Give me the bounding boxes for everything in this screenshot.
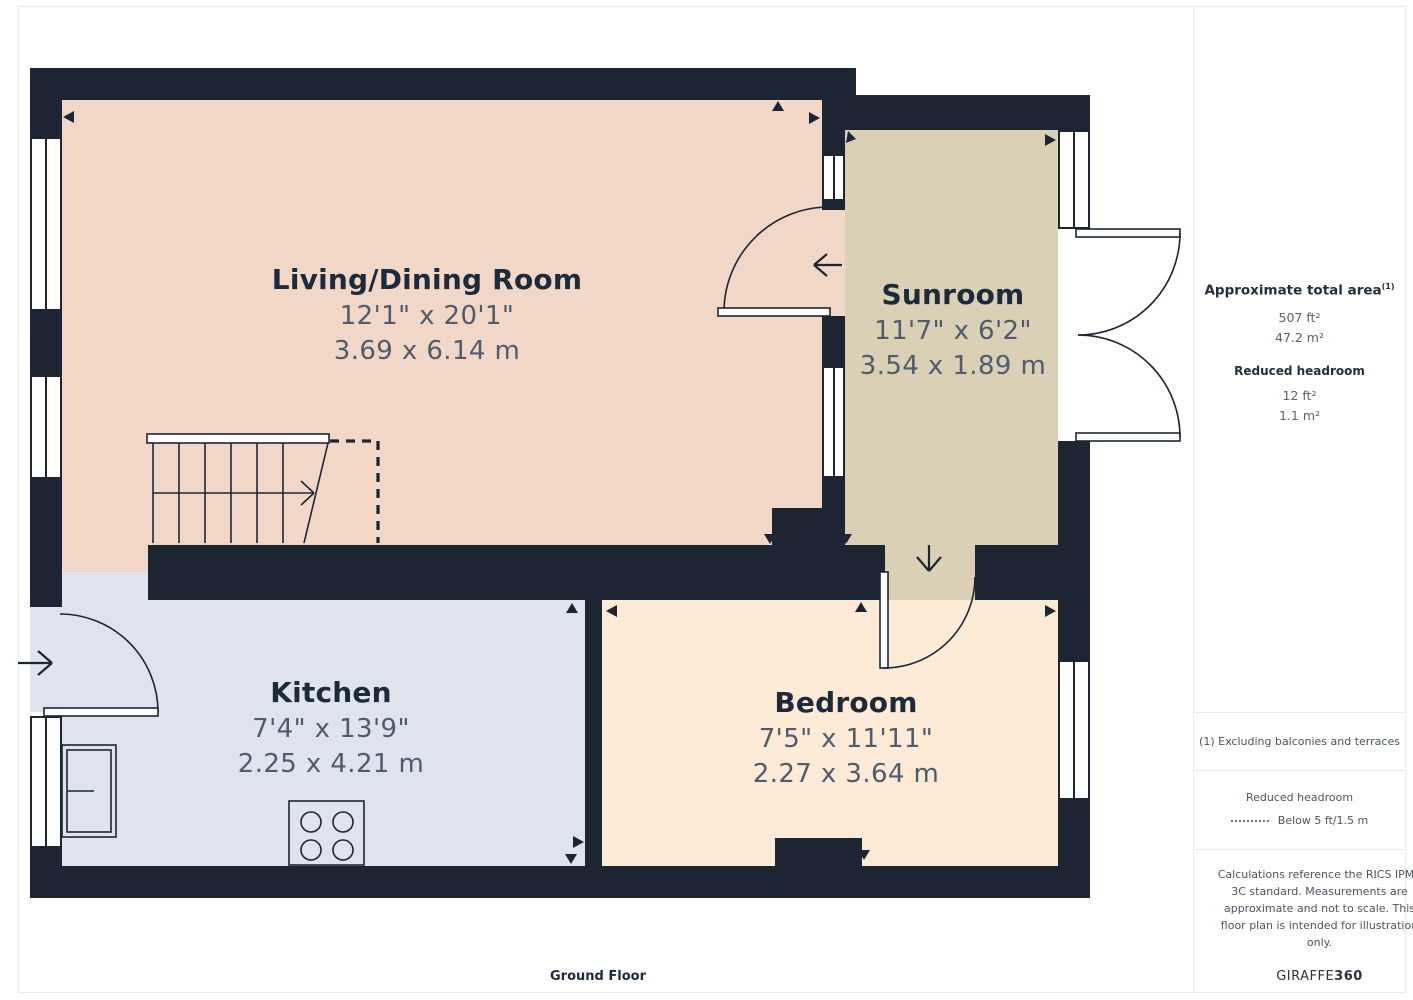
room-dim-ft: 7'4" x 13'9" (238, 714, 425, 744)
giraffe360-logo: GIRAFFE360 (1213, 967, 1413, 987)
french-doors (1076, 229, 1180, 441)
room-name: Bedroom (753, 686, 940, 719)
wall-divider-b (822, 201, 845, 210)
room-dim-m: 3.54 x 1.89 m (860, 351, 1047, 381)
room-name: Kitchen (238, 676, 425, 709)
room-dim-ft: 7'5" x 11'11" (753, 724, 940, 754)
reduced-headroom-ft: 12 ft² (1193, 386, 1406, 406)
legend-title: Reduced headroom (1193, 791, 1406, 804)
legend-row: Below 5 ft/1.5 m (1193, 814, 1406, 827)
sidebar-left-border (1193, 6, 1194, 993)
floor-living-door-opening (822, 210, 845, 316)
floor-kitchen-entry (30, 607, 62, 712)
total-area-ft: 507 ft² (1193, 308, 1406, 328)
room-label-bedroom: Bedroom 7'5" x 11'11" 2.27 x 3.64 m (753, 686, 940, 789)
window-divider-2 (822, 366, 845, 478)
wall-divider-c (822, 316, 845, 366)
total-area-m: 47.2 m² (1193, 328, 1406, 348)
room-dim-ft: 12'1" x 20'1" (272, 301, 582, 331)
wall-left-a (30, 68, 62, 137)
sidebar-divider-2 (1193, 770, 1406, 771)
reduced-headroom-label: Reduced headroom (1193, 364, 1406, 378)
window-living-left-1 (30, 137, 62, 311)
dotted-line-icon (1231, 820, 1269, 822)
floor-passage (885, 545, 975, 600)
room-dim-m: 2.25 x 4.21 m (238, 749, 425, 779)
wall-middle-right (975, 545, 1090, 600)
wall-middle (148, 545, 885, 600)
wall-chimney (775, 838, 862, 866)
room-label-sunroom: Sunroom 11'7" x 6'2" 3.54 x 1.89 m (860, 278, 1047, 381)
floor-living-ext (62, 545, 148, 572)
window-kitchen-left (30, 716, 62, 848)
total-area-label: Approximate total area(1) (1193, 282, 1406, 299)
wall-partition-kitchen-bedroom (585, 600, 602, 866)
sidebar-divider-1 (1193, 712, 1406, 713)
total-area-footnote-mark: (1) (1382, 282, 1395, 291)
wall-divider-a (822, 95, 845, 154)
wall-divider-d (822, 478, 845, 545)
window-bedroom-right (1058, 660, 1090, 800)
disclaimer-text: Calculations reference the RICS IPMS 3C … (1213, 866, 1413, 951)
room-dim-m: 2.27 x 3.64 m (753, 759, 940, 789)
room-label-living: Living/Dining Room 12'1" x 20'1" 3.69 x … (272, 263, 582, 366)
sidebar: Approximate total area(1) 507 ft² 47.2 m… (1193, 0, 1406, 1000)
brand-name: GIRAFFE (1276, 969, 1334, 984)
floorplan-page: Living/Dining Room 12'1" x 20'1" 3.69 x … (0, 0, 1413, 1000)
wall-right-sunroom (1058, 441, 1090, 545)
wall-step (772, 508, 822, 545)
headroom-legend: Reduced headroom Below 5 ft/1.5 m (1193, 791, 1406, 827)
reduced-headroom-m: 1.1 m² (1193, 406, 1406, 426)
area-summary: Approximate total area(1) 507 ft² 47.2 m… (1193, 282, 1406, 426)
window-sunroom-right (1058, 130, 1090, 229)
legend-value: Below 5 ft/1.5 m (1278, 814, 1369, 827)
disclaimer-block: Calculations reference the RICS IPMS 3C … (1193, 866, 1413, 987)
note-exclusions: (1) Excluding balconies and terraces (1193, 735, 1406, 748)
room-name: Sunroom (860, 278, 1047, 311)
sidebar-divider-3 (1193, 849, 1406, 850)
brand-suffix: 360 (1334, 969, 1363, 984)
wall-right-bedroom-a (1058, 600, 1090, 660)
room-dim-m: 3.69 x 6.14 m (272, 336, 582, 366)
wall-bottom (30, 866, 1090, 898)
wall-right-bedroom-b (1058, 800, 1090, 866)
room-label-kitchen: Kitchen 7'4" x 13'9" 2.25 x 4.21 m (238, 676, 425, 779)
room-name: Living/Dining Room (272, 263, 582, 296)
window-living-left-2 (30, 375, 62, 479)
total-area-label-text: Approximate total area (1204, 283, 1381, 299)
floor-plan: Living/Dining Room 12'1" x 20'1" 3.69 x … (0, 0, 1193, 1000)
room-dim-ft: 11'7" x 6'2" (860, 316, 1047, 346)
window-divider-1 (822, 154, 845, 201)
wall-top-living (30, 68, 856, 100)
floor-title: Ground Floor (550, 969, 646, 984)
wall-left-b (30, 311, 62, 375)
wall-left-c (30, 479, 62, 607)
wall-top-sunroom (822, 95, 1090, 130)
